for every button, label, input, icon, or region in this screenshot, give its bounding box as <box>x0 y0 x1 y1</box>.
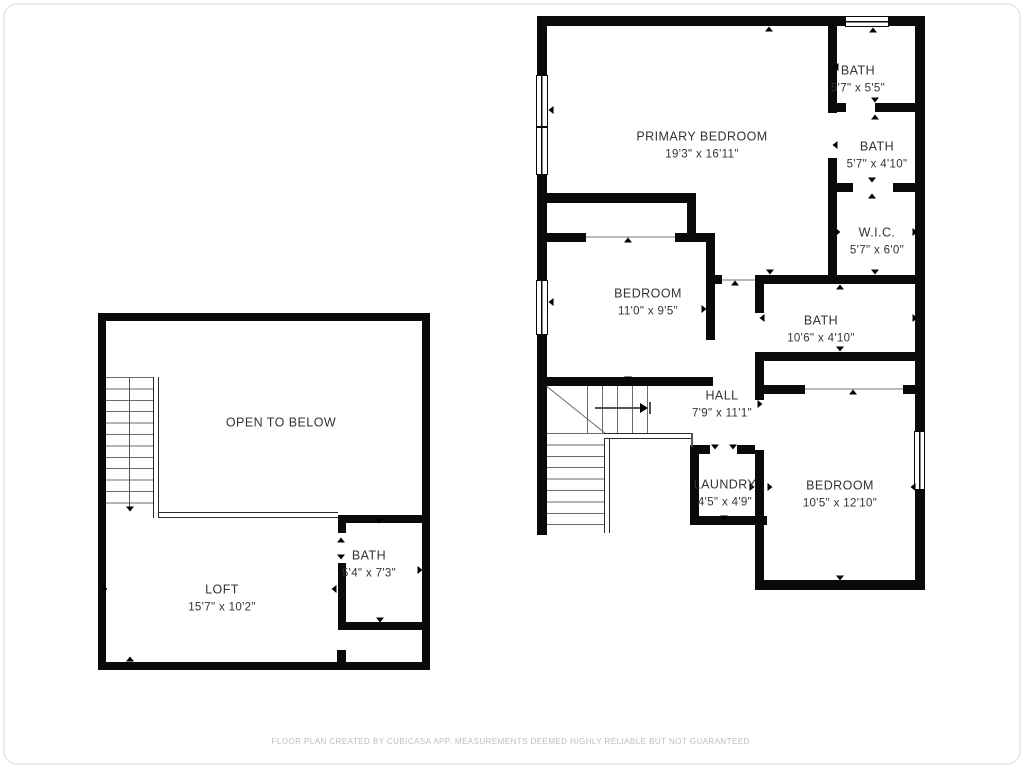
room-dims: 5'4" x 7'3" <box>342 566 396 584</box>
room-name: BEDROOM <box>803 476 877 495</box>
marker <box>103 585 108 593</box>
wall-segment <box>338 515 346 533</box>
wall-segment <box>706 275 722 284</box>
stair-down-arrow <box>126 507 134 512</box>
wall-segment <box>837 183 853 192</box>
marker <box>871 115 879 120</box>
wall-segment <box>903 385 925 394</box>
stair-rail <box>159 512 338 518</box>
disclaimer-text: FLOOR PLAN CREATED BY CUBICASA APP. MEAS… <box>0 737 1024 746</box>
wall-segment <box>706 284 715 340</box>
staircase-upper-treads <box>547 433 605 534</box>
wall-segment <box>537 16 547 75</box>
marker <box>849 390 857 395</box>
marker <box>768 483 773 491</box>
wall-segment <box>828 158 837 277</box>
window-symbol <box>914 431 925 490</box>
marker <box>418 566 423 574</box>
wall-segment <box>690 516 767 525</box>
window-symbol <box>845 16 889 27</box>
marker <box>913 314 918 322</box>
wall-segment <box>837 103 846 112</box>
marker <box>765 27 773 32</box>
marker <box>624 238 632 243</box>
room-label-wic: W.I.C. 5'7" x 6'0" <box>850 223 904 260</box>
marker <box>836 285 844 290</box>
room-dims: 11'0" x 9'5" <box>614 304 682 322</box>
room-label-primary-bedroom: PRIMARY BEDROOM 19'3" x 16'11" <box>636 127 767 164</box>
room-name: BATH <box>847 137 908 156</box>
room-name: W.I.C. <box>850 223 904 242</box>
room-name: LAUNDRY <box>694 475 757 494</box>
room-name: HALL <box>692 386 752 405</box>
wall-segment <box>338 515 430 523</box>
wall-segment <box>755 352 925 361</box>
room-name: BEDROOM <box>614 284 682 303</box>
marker <box>868 178 876 183</box>
wall-segment <box>98 313 430 321</box>
wall-segment <box>422 313 430 670</box>
wall-segment <box>337 650 346 662</box>
marker <box>702 305 707 313</box>
wall-segment <box>98 313 106 670</box>
marker <box>766 270 774 275</box>
stair-rail <box>604 433 610 533</box>
room-label-bedroom-mid: BEDROOM 11'0" x 9'5" <box>614 284 682 321</box>
marker <box>624 377 632 382</box>
marker <box>758 400 763 408</box>
wall-segment <box>338 622 430 630</box>
window-symbol <box>536 280 548 335</box>
room-dims: 7'9" x 11'1" <box>692 406 752 424</box>
room-label-bath-mid: BATH 5'7" x 4'10" <box>847 137 908 174</box>
room-dims: 5'7" x 5'5" <box>831 81 885 99</box>
wall-segment <box>737 445 755 454</box>
staircase-center-line <box>129 377 130 507</box>
marker <box>376 618 384 623</box>
floor-plan-canvas: PRIMARY BEDROOM 19'3" x 16'11" BATH 5'7"… <box>0 0 1024 768</box>
window-symbol <box>536 127 548 175</box>
room-dims: 19'3" x 16'11" <box>636 147 767 165</box>
stair-direction-arrow <box>649 402 651 414</box>
room-name: BATH <box>787 311 855 330</box>
wall-segment <box>546 193 696 203</box>
marker <box>126 657 134 662</box>
wall-segment <box>915 16 925 432</box>
stair-rail <box>604 433 693 439</box>
marker <box>332 585 337 593</box>
wall-segment <box>755 580 925 590</box>
room-label-bedroom-bottom: BEDROOM 10'5" x 12'10" <box>803 476 877 513</box>
wall-segment <box>755 450 764 580</box>
stair-rail <box>153 377 159 518</box>
room-label-bath-loft: BATH 5'4" x 7'3" <box>342 546 396 583</box>
marker <box>549 106 554 114</box>
wall-segment <box>755 275 925 284</box>
stair-direction-arrow <box>595 407 641 409</box>
marker <box>913 228 918 236</box>
room-name: BATH <box>342 546 396 565</box>
open-to-below-label: OPEN TO BELOW <box>226 413 336 432</box>
marker <box>760 314 765 322</box>
wall-segment <box>755 385 805 394</box>
room-label-bath-top: BATH 5'7" x 5'5" <box>831 61 885 98</box>
marker <box>729 445 737 450</box>
marker <box>375 519 383 524</box>
wall-segment <box>893 183 918 192</box>
marker <box>836 576 844 581</box>
marker <box>337 538 345 543</box>
window-symbol <box>536 75 548 127</box>
wall-segment <box>706 233 715 275</box>
room-name: BATH <box>831 61 885 80</box>
room-dims: 4'5" x 4'9" <box>694 495 757 513</box>
room-dims: 5'7" x 6'0" <box>850 243 904 261</box>
stair-rail <box>691 433 693 447</box>
wall-segment <box>537 175 547 280</box>
marker <box>868 194 876 199</box>
stair-direction-arrow <box>640 403 648 413</box>
room-dims: 5'7" x 4'10" <box>847 157 908 175</box>
room-label-hall: HALL 7'9" x 11'1" <box>692 386 752 423</box>
wall-segment <box>690 445 710 454</box>
room-label-bath-hall: BATH 10'6" x 4'10" <box>787 311 855 348</box>
room-dims: 15'7" x 10'2" <box>188 600 256 618</box>
wall-segment <box>537 335 547 535</box>
room-dims: 10'6" x 4'10" <box>787 331 855 349</box>
marker <box>833 141 838 149</box>
room-name: OPEN TO BELOW <box>226 413 336 432</box>
room-name: PRIMARY BEDROOM <box>636 127 767 146</box>
marker <box>871 270 879 275</box>
wall-segment <box>755 284 764 313</box>
wall-segment <box>755 361 764 400</box>
marker <box>711 445 719 450</box>
marker <box>836 228 841 236</box>
wall-segment <box>98 662 430 670</box>
room-label-laundry: LAUNDRY 4'5" x 4'9" <box>694 475 757 512</box>
wall-segment <box>915 490 925 590</box>
marker <box>720 516 728 521</box>
marker <box>869 28 877 33</box>
marker <box>731 281 739 286</box>
room-name: LOFT <box>188 580 256 599</box>
marker <box>911 483 916 491</box>
wall-segment <box>546 233 586 242</box>
room-dims: 10'5" x 12'10" <box>803 496 877 514</box>
marker <box>549 298 554 306</box>
room-label-loft: LOFT 15'7" x 10'2" <box>188 580 256 617</box>
wall-segment <box>875 103 918 112</box>
